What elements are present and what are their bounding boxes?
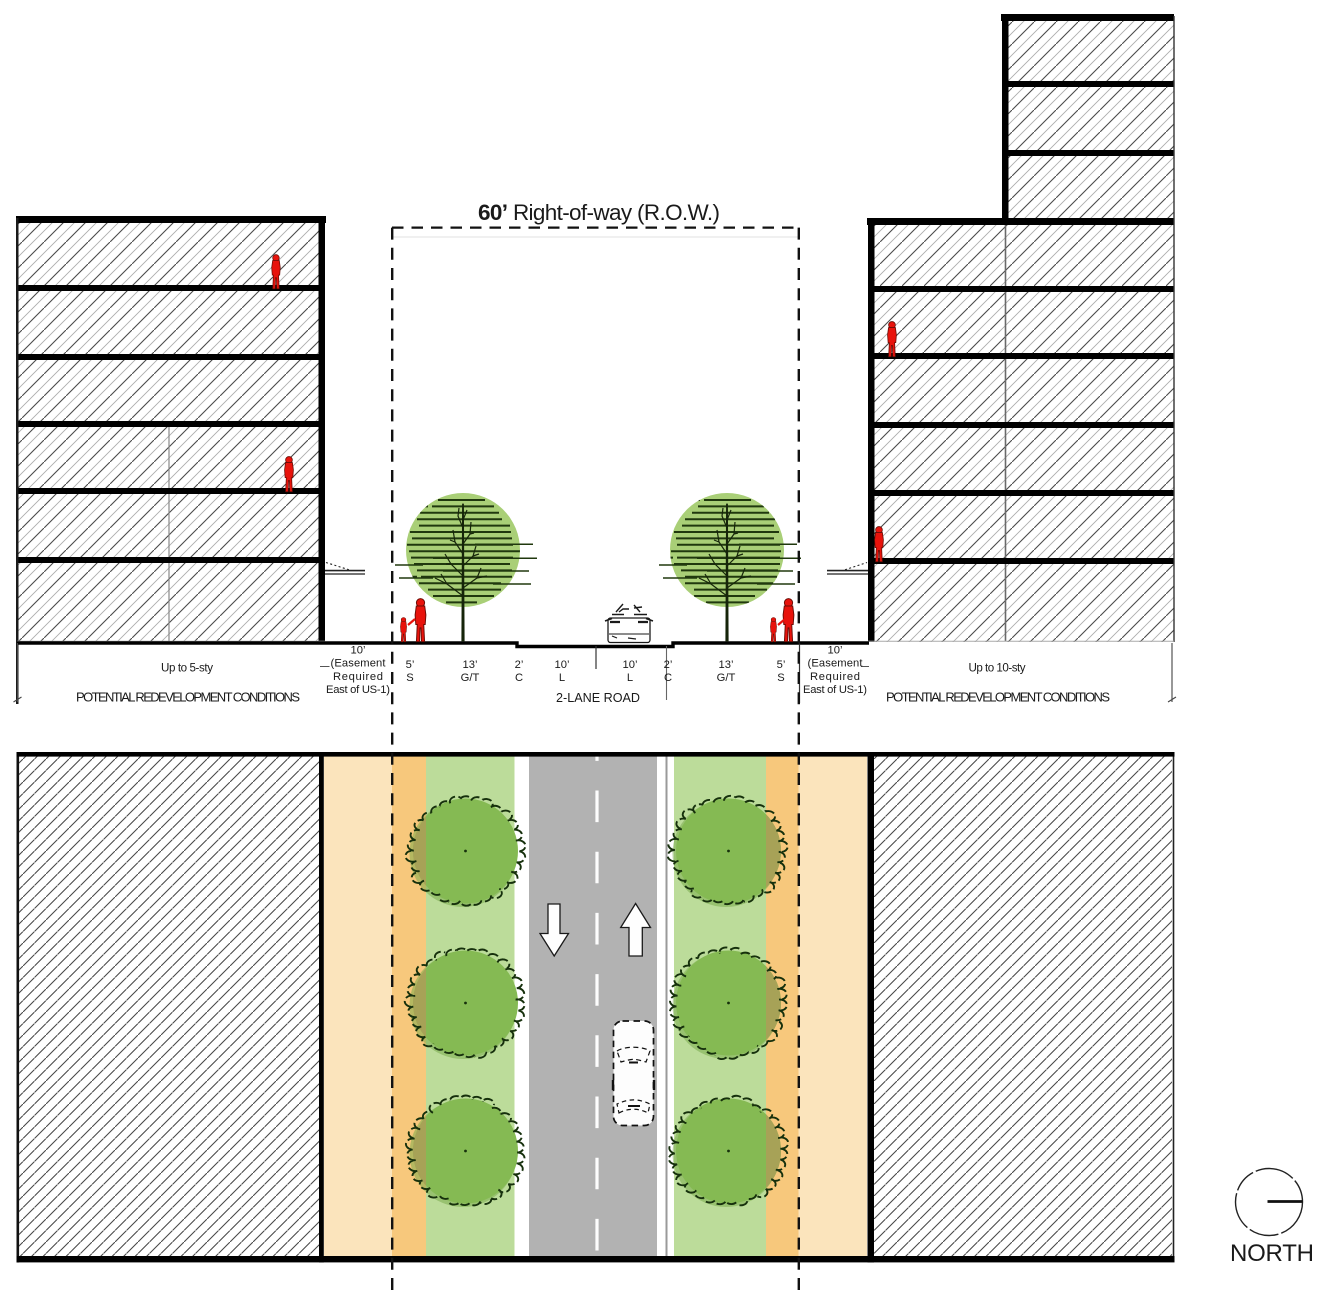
svg-text:2’: 2’	[515, 659, 524, 671]
svg-text:Required: Required	[810, 671, 860, 683]
svg-text:Up to 10-sty: Up to 10-sty	[969, 662, 1026, 675]
svg-text:G/T: G/T	[461, 672, 480, 684]
svg-text:2’: 2’	[664, 659, 673, 671]
svg-text:NORTH: NORTH	[1230, 1240, 1314, 1267]
svg-text:G/T: G/T	[717, 672, 736, 684]
svg-text:10’: 10’	[828, 645, 843, 657]
svg-text:5’: 5’	[406, 659, 415, 671]
svg-text:POTENTIAL REDEVELOPMENT CONDIT: POTENTIAL REDEVELOPMENT CONDITIONS	[886, 690, 1110, 705]
svg-text:10’: 10’	[351, 645, 366, 657]
svg-text:13’: 13’	[719, 659, 734, 671]
svg-text:5’: 5’	[777, 659, 786, 671]
svg-text:C: C	[515, 672, 523, 684]
svg-text:2-LANE ROAD: 2-LANE ROAD	[556, 691, 640, 705]
svg-text:60’ Right-of-way (R.O.W.): 60’ Right-of-way (R.O.W.)	[478, 200, 720, 225]
svg-text:13’: 13’	[463, 659, 478, 671]
svg-text:S: S	[777, 672, 784, 684]
svg-text:East of US-1): East of US-1)	[326, 684, 390, 696]
svg-text:POTENTIAL REDEVELOPMENT CONDIT: POTENTIAL REDEVELOPMENT CONDITIONS	[76, 690, 300, 705]
svg-text:East of US-1): East of US-1)	[803, 684, 867, 696]
svg-text:(Easement: (Easement	[808, 658, 864, 670]
svg-text:C: C	[664, 672, 672, 684]
svg-text:(Easement: (Easement	[331, 658, 387, 670]
svg-text:L: L	[559, 672, 565, 684]
svg-text:L: L	[627, 672, 633, 684]
svg-text:10’: 10’	[623, 659, 638, 671]
svg-text:Required: Required	[333, 671, 383, 683]
svg-text:Up to 5-sty: Up to 5-sty	[161, 662, 213, 675]
svg-text:10’: 10’	[555, 659, 570, 671]
svg-text:S: S	[406, 672, 413, 684]
